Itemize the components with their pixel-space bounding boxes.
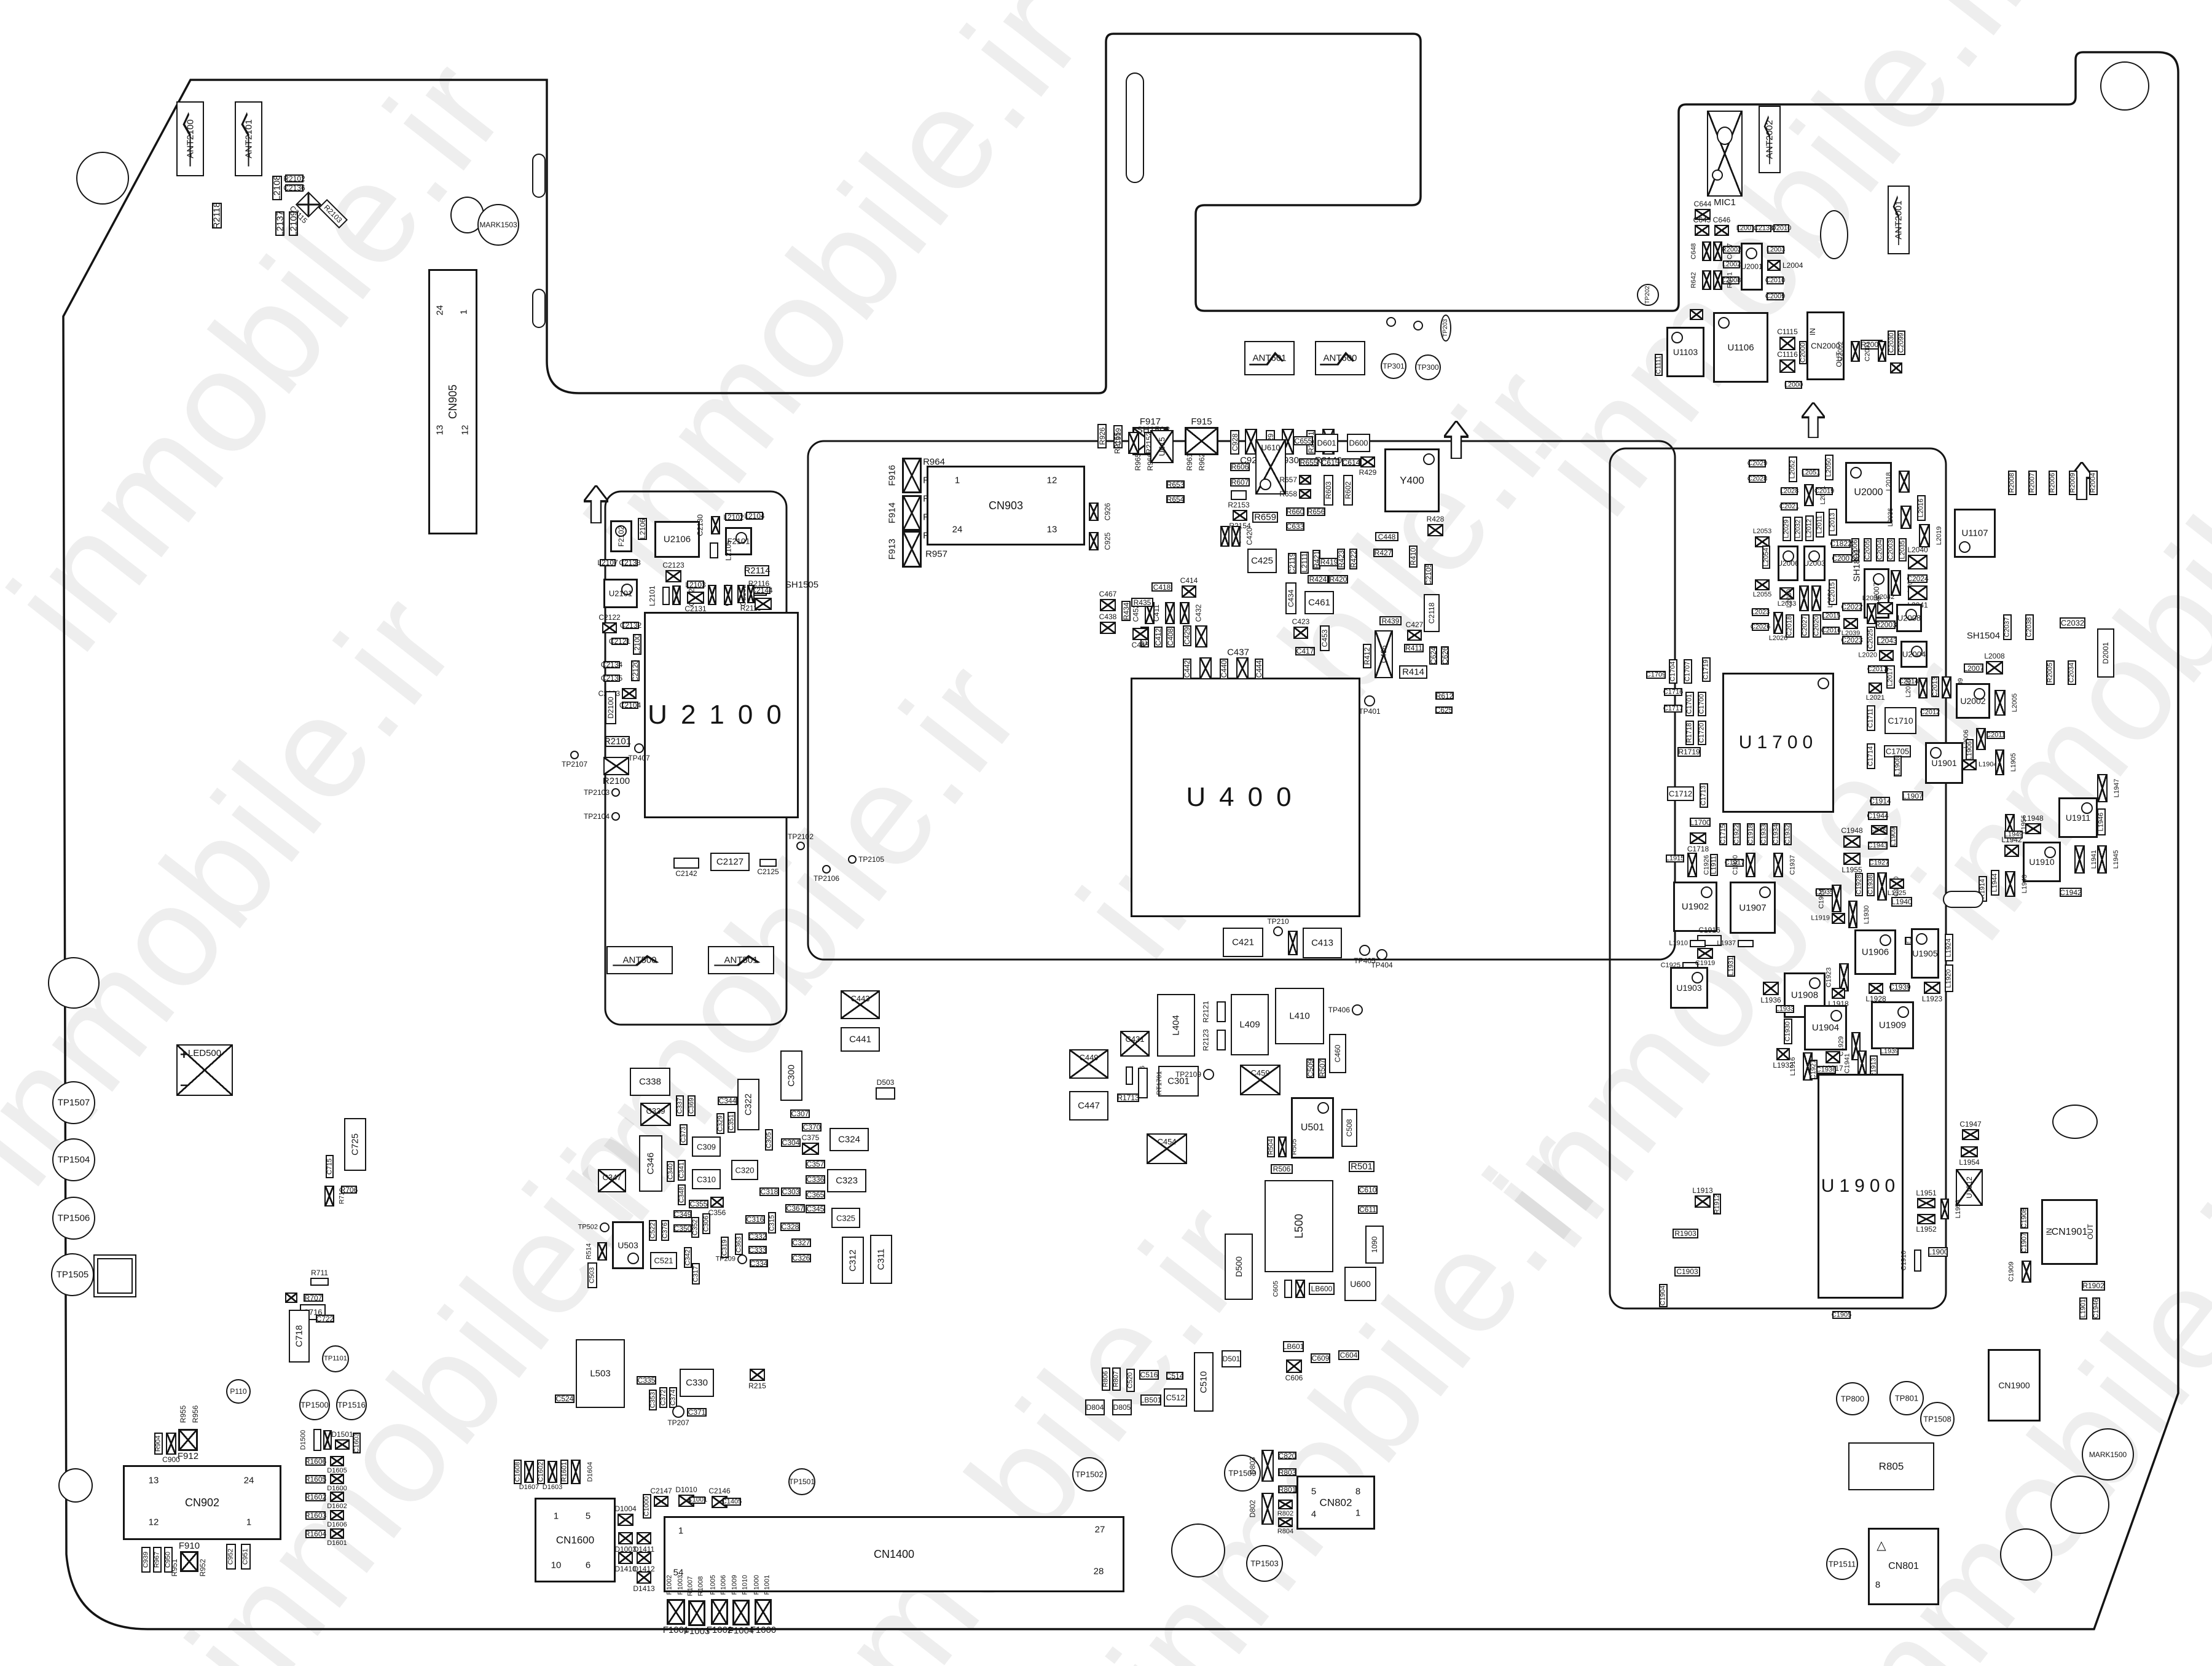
component-label: C309 bbox=[697, 1143, 716, 1151]
component-label: C1707 bbox=[1685, 662, 1692, 681]
capacitor-crossed-L2038: L2038 bbox=[1867, 603, 1877, 624]
part-R2008: R2008 bbox=[2008, 471, 2017, 495]
text-R1003: R1003 bbox=[678, 1575, 684, 1595]
part-C2024: C2024 bbox=[1908, 574, 1928, 583]
part-C344: C344 bbox=[718, 1097, 737, 1105]
pin1-dot bbox=[1959, 541, 1971, 553]
part-R2114: R2114 bbox=[745, 565, 769, 576]
part-R653: R653 bbox=[1166, 480, 1185, 488]
capacitor-crossed-C445: C445 bbox=[1132, 628, 1148, 640]
text-12: 12 bbox=[461, 425, 470, 436]
component-label: C1405 bbox=[722, 1498, 742, 1505]
board-hole-unlabeled bbox=[1820, 210, 1848, 259]
part-C328: C328 bbox=[780, 1222, 800, 1231]
component-label: C2004 bbox=[1877, 540, 1883, 560]
capacitor-crossed-R429: R429 bbox=[1360, 456, 1375, 467]
pin1-dot bbox=[1718, 317, 1730, 329]
capacitor-crossed-C2001: C2001 bbox=[1878, 341, 1886, 362]
part-L1937: L1937 bbox=[1738, 940, 1754, 947]
part-C1927: C1927 bbox=[1869, 859, 1889, 867]
part-C365: C365 bbox=[806, 1191, 825, 1199]
testpoint-TP1509: TP1509 bbox=[1224, 1455, 1261, 1492]
component-label: C1603 bbox=[353, 1433, 360, 1453]
testpoint-TP1507: TP1507 bbox=[52, 1081, 95, 1124]
part-C625: C625 bbox=[1435, 706, 1453, 714]
component-label: C2022 bbox=[1841, 603, 1862, 611]
part-C2009: C2009 bbox=[1767, 292, 1784, 300]
part-C1707: C1707 bbox=[1684, 659, 1692, 684]
component-label: L1901 bbox=[2080, 1299, 2087, 1318]
part-R801: R801 bbox=[1278, 1485, 1296, 1493]
capacitor-crossed-R710: R710 bbox=[324, 1186, 334, 1206]
part-C371: C371 bbox=[687, 1408, 707, 1417]
part-C324: C324 bbox=[829, 1128, 869, 1151]
component-label: C2021 bbox=[1779, 503, 1799, 510]
component-label: C460 bbox=[1334, 1045, 1341, 1063]
component-label: L1915 bbox=[1666, 855, 1685, 862]
part-L2000: L2000 bbox=[1785, 381, 1802, 389]
part-L1944: L1944 bbox=[1991, 870, 1999, 896]
text-R1008: R1008 bbox=[698, 1576, 705, 1596]
component-label: TP1503 bbox=[1250, 1560, 1279, 1568]
component-label: C326 bbox=[793, 1254, 810, 1262]
part-C442: C442 bbox=[1183, 659, 1191, 679]
layer-arrow-icon-unlabeled bbox=[584, 485, 608, 523]
component-label: C336 bbox=[807, 1176, 825, 1183]
component-label: R420 bbox=[1330, 576, 1347, 583]
testpoint-TP1501: TP1501 bbox=[788, 1468, 815, 1495]
part-C1905: C1905 bbox=[1832, 1311, 1851, 1319]
part-L2050: L2050 bbox=[1825, 455, 1834, 480]
part-C2005: C2005 bbox=[1864, 538, 1872, 561]
chip-U2002: U2002 bbox=[1956, 683, 1990, 719]
pin1-dot bbox=[2081, 802, 2093, 814]
part-LB600: LB600 bbox=[1309, 1283, 1335, 1295]
component-label: R612 bbox=[1436, 692, 1454, 700]
part-L2052: L2052 bbox=[1789, 456, 1797, 482]
microphone-MIC1: MIC1 bbox=[1707, 111, 1743, 197]
part-C319: C319 bbox=[721, 1237, 729, 1258]
part-R2121: R2121 bbox=[1217, 1001, 1226, 1022]
component-label: C348 bbox=[678, 1187, 685, 1203]
chip-U2000: U2000 bbox=[1845, 462, 1892, 523]
capacitor-crossed-C1948: C1948 bbox=[1843, 835, 1861, 848]
text-R1002: R1002 bbox=[667, 1575, 673, 1595]
part-C1000: C1000 bbox=[643, 1494, 651, 1519]
capacitor-crossed-R2122: R2122 bbox=[1288, 931, 1298, 955]
component-label: U600 bbox=[1350, 1280, 1370, 1288]
part-L2051: L2051 bbox=[1802, 469, 1819, 477]
component-label: TP800 bbox=[1841, 1395, 1864, 1403]
text-R965: R965 bbox=[1134, 453, 1142, 471]
part-C447: C447 bbox=[1069, 1091, 1108, 1120]
part-C1716: C1716 bbox=[1664, 688, 1682, 696]
component-label: C355 bbox=[690, 1200, 708, 1208]
component-label: L1920 bbox=[1946, 969, 1953, 988]
part-R612: R612 bbox=[1435, 692, 1454, 700]
component-label: C1946 bbox=[2093, 1299, 2100, 1318]
testpoint-TP405: TP405 bbox=[1359, 945, 1370, 956]
part-L1920: L1920 bbox=[1945, 964, 1953, 992]
component-label: R1601 bbox=[561, 1462, 568, 1482]
component-label: L1950 bbox=[1871, 827, 1888, 833]
board-slot-unlabeled bbox=[532, 154, 546, 198]
part-C2011: C2011 bbox=[1986, 731, 2005, 739]
part-C312: C312 bbox=[842, 1237, 864, 1284]
component-label: C1602 bbox=[538, 1462, 544, 1482]
capacitor-crossed-L1942: L1942 bbox=[2004, 845, 2019, 857]
capacitor-crossed-L1945: L1945 bbox=[2097, 845, 2107, 874]
part-C1943: C1943 bbox=[1868, 842, 1888, 850]
part-C373: C373 bbox=[680, 1124, 688, 1145]
component-label: C610 bbox=[1359, 1186, 1377, 1194]
text-5: 5 bbox=[586, 1512, 590, 1521]
part-C820: C820 bbox=[1278, 1452, 1296, 1460]
component-label: C1705 bbox=[1886, 748, 1909, 756]
component-label: C2038 bbox=[2026, 617, 2033, 637]
part-C524: C524 bbox=[555, 1394, 575, 1403]
text-27: 27 bbox=[1095, 1525, 1105, 1535]
component-label: L1933 bbox=[1776, 1006, 1795, 1012]
component-label: C353 bbox=[649, 1392, 656, 1408]
capacitor-crossed-R2154: R2154 bbox=[1233, 510, 1247, 521]
part-C444: C444 bbox=[1255, 659, 1263, 679]
capacitor-crossed-L1923: L1923 bbox=[1924, 982, 1940, 994]
pin1-dot bbox=[1930, 747, 1942, 759]
part-C919: C919 bbox=[1113, 425, 1123, 448]
part-D2001: D2001 bbox=[2097, 628, 2114, 678]
component-label: L2100 bbox=[633, 634, 641, 654]
part-C2025: C2025 bbox=[1867, 627, 1875, 651]
part-C333: C333 bbox=[748, 1246, 767, 1254]
component-label: L410 bbox=[1289, 1012, 1309, 1021]
capacitor-crossed-L2009: L2009 bbox=[1942, 676, 1951, 698]
component-label: U1900 bbox=[1821, 1177, 1900, 1195]
component-label: TP1502 bbox=[1075, 1471, 1104, 1479]
component-label: R806 bbox=[1103, 1371, 1110, 1387]
board-hole-unlabeled bbox=[2000, 1528, 2052, 1581]
component-label: C372 bbox=[660, 1390, 667, 1406]
capacitor-crossed-L2018: L2018 bbox=[1899, 471, 1910, 493]
part-C2142: C2142 bbox=[673, 858, 699, 869]
part-C725: C725 bbox=[344, 1118, 366, 1171]
component-label: C2011 bbox=[1986, 732, 2006, 738]
part-R2123: R2123 bbox=[1217, 1030, 1226, 1050]
component-label: C417 bbox=[1296, 647, 1314, 655]
led-LED500: +−LED500 bbox=[176, 1044, 233, 1096]
component-label: L409 bbox=[1239, 1020, 1260, 1030]
part-C367: C367 bbox=[785, 1204, 805, 1213]
part-C429: C429 bbox=[1183, 625, 1191, 646]
part-C355: C355 bbox=[689, 1200, 708, 1208]
text-13: 13 bbox=[149, 1476, 159, 1485]
component-label: L1907 bbox=[1902, 792, 1923, 800]
capacitor-crossed-D1501: D1501 bbox=[335, 1439, 350, 1450]
component-label: L1906 bbox=[1966, 741, 1973, 761]
capacitor-crossed-C1924: C1924 bbox=[1832, 885, 1841, 912]
capacitor-crossed-unlabeled bbox=[1199, 657, 1212, 679]
part-L2029: L2029 bbox=[1783, 517, 1791, 541]
component-label: C1917 bbox=[1725, 859, 1744, 866]
part-R414: R414 bbox=[1399, 665, 1427, 679]
component-label: L1946 bbox=[2098, 813, 2105, 832]
part-C2015: C2015 bbox=[1829, 579, 1837, 605]
component-label: C2007 bbox=[1832, 555, 1853, 562]
component-label: C1719 bbox=[1703, 660, 1710, 679]
component-label: U503 bbox=[618, 1241, 638, 1249]
part-C2099: C2099 bbox=[1897, 330, 1905, 355]
board-hole-unlabeled bbox=[76, 152, 129, 205]
part-R2102: R2102 bbox=[285, 174, 304, 182]
component-label: U1912 bbox=[1966, 1176, 1973, 1198]
part-R2006: R2006 bbox=[2049, 471, 2057, 495]
testpoint-TP1502: TP1502 bbox=[1072, 1457, 1107, 1492]
part-C418: C418 bbox=[1151, 582, 1172, 592]
part-R427: R427 bbox=[1373, 549, 1393, 557]
component-label: D600 bbox=[1349, 439, 1368, 447]
component-label: C1111 bbox=[1655, 356, 1662, 374]
part-C2138: C2138 bbox=[1755, 225, 1771, 232]
connector-CN1600: CN1600 bbox=[535, 1498, 616, 1582]
component-label: C1927 bbox=[1869, 859, 1889, 866]
component-label: C322 bbox=[744, 1093, 753, 1116]
part-C2003: C2003 bbox=[1887, 538, 1895, 561]
capacitor-crossed-R215: R215 bbox=[750, 1369, 765, 1381]
component-label: C2017 bbox=[1867, 666, 1887, 673]
pin1-dot bbox=[1911, 646, 1923, 657]
component-label: U615 bbox=[1158, 437, 1166, 456]
part-C453: C453 bbox=[1320, 625, 1330, 651]
part-L2032: L2032 bbox=[1794, 517, 1803, 541]
text-12: 12 bbox=[149, 1518, 159, 1527]
component-label: C418 bbox=[1153, 584, 1171, 591]
testpoint-TP1506: TP1506 bbox=[52, 1197, 95, 1240]
part-L1910: L1910 bbox=[1690, 940, 1706, 947]
component-label: C334 bbox=[750, 1260, 768, 1267]
component-label: C365 bbox=[807, 1191, 825, 1199]
capacitor-crossed-D1603: D1603 bbox=[547, 1461, 557, 1483]
board-hole-unlabeled bbox=[48, 957, 100, 1009]
capacitor-crossed-C644: C644 bbox=[1695, 209, 1711, 220]
part-C2032: C2032 bbox=[2060, 617, 2085, 628]
text-SH1505: SH1505 bbox=[785, 581, 818, 590]
component-label: L1909 bbox=[1891, 827, 1897, 847]
capacitor-crossed-L1954: L1954 bbox=[1961, 1146, 1978, 1157]
part-C514: C514 bbox=[1166, 1372, 1183, 1380]
part-C461: C461 bbox=[1304, 591, 1334, 614]
component-label: C1904 bbox=[1660, 1286, 1667, 1305]
capacitor-crossed-C436: C436 bbox=[1375, 630, 1393, 678]
capacitor-crossed-C2126: C2126 bbox=[672, 585, 681, 605]
part-D503: D503 bbox=[876, 1087, 895, 1100]
part-R2101: R2101 bbox=[605, 736, 630, 747]
part-C1903: C1903 bbox=[1674, 1267, 1700, 1277]
component-label: L1935 bbox=[1815, 889, 1834, 896]
part-C316: C316 bbox=[745, 1215, 765, 1224]
component-label: C2028 bbox=[1747, 475, 1767, 482]
capacitor-crossed-L1928: L1928 bbox=[1869, 983, 1883, 994]
component-label: C332 bbox=[749, 1233, 767, 1240]
capacitor-crossed-unlabeled bbox=[1195, 625, 1207, 647]
text-R955: R955 bbox=[179, 1406, 187, 1423]
part-C2013: C2013 bbox=[1931, 676, 1939, 697]
component-label: C357 bbox=[807, 1160, 825, 1168]
text-SH1504: SH1504 bbox=[1967, 632, 2000, 641]
component-label: R504 bbox=[1268, 1139, 1274, 1155]
component-label: L2023 bbox=[1751, 609, 1770, 616]
component-label: C2118 bbox=[1428, 603, 1435, 624]
antenna-ANT500: ANT500 bbox=[606, 946, 673, 974]
part-R1605: R1605 bbox=[305, 1475, 326, 1484]
component-label: R1902 bbox=[2082, 1282, 2104, 1289]
text-R962: R962 bbox=[1198, 453, 1206, 471]
component-label: C350 bbox=[674, 1225, 692, 1232]
component-label: C425 bbox=[1251, 557, 1273, 566]
part-C363: C363 bbox=[735, 1234, 743, 1255]
capacitor-crossed-C1937: C1937 bbox=[1773, 853, 1783, 877]
part-1090: 1090 bbox=[1365, 1226, 1384, 1264]
part-C1938: C1938 bbox=[1867, 873, 1875, 896]
board-hole-unlabeled bbox=[1171, 1523, 1225, 1578]
part-R805: R805 bbox=[1848, 1442, 1934, 1490]
part-C2121: C2121 bbox=[611, 638, 628, 645]
board-hole-unlabeled bbox=[2100, 61, 2149, 111]
capacitor-crossed-C1941: C1941 bbox=[1857, 1050, 1867, 1076]
part-R711: R711 bbox=[310, 1278, 329, 1286]
capacitor-crossed-L2008: L2008 bbox=[1986, 661, 2003, 675]
part-C2023: C2023 bbox=[1842, 636, 1862, 644]
component-label: D2001 bbox=[2102, 642, 2109, 663]
pin1-dot bbox=[1746, 248, 1757, 259]
capacitor-crossed-L2004: L2004 bbox=[1767, 260, 1781, 271]
text-1: 1 bbox=[460, 310, 469, 315]
part-C1930: C1930 bbox=[1784, 1019, 1792, 1044]
part-C1713: C1713 bbox=[1700, 783, 1708, 808]
fuse-F916: F916 bbox=[902, 458, 922, 493]
part-C307: C307 bbox=[790, 1109, 810, 1118]
part-C326: C326 bbox=[791, 1254, 811, 1262]
part-R654: R654 bbox=[1166, 495, 1185, 503]
part-L2104: L2104 bbox=[746, 512, 763, 520]
capacitor-crossed-C1909: C1909 bbox=[2022, 1261, 2031, 1283]
part-C315: C315 bbox=[768, 1212, 776, 1234]
fuse-F1000: F1000 bbox=[755, 1599, 772, 1625]
polarity-mark: − bbox=[180, 1077, 188, 1093]
component-label: L1944 bbox=[1992, 874, 1999, 893]
component-label: C919 bbox=[1115, 428, 1122, 446]
component-label: C448 bbox=[1378, 533, 1396, 541]
part-C1914: C1914 bbox=[1870, 797, 1890, 805]
part-R1716: R1716 bbox=[1126, 1066, 1133, 1085]
chip-U1903: U1903 bbox=[1670, 967, 1708, 1009]
testpoint-TP1500: TP1500 bbox=[299, 1390, 330, 1420]
part-R806: R806 bbox=[1102, 1367, 1110, 1391]
component-label: C2019 bbox=[1814, 488, 1834, 495]
component-label: C352 bbox=[692, 1219, 699, 1235]
part-C2105: C2105 bbox=[1424, 564, 1433, 585]
component-label: C459 bbox=[1250, 1069, 1269, 1077]
component-label: C2030 bbox=[1888, 333, 1895, 353]
component-label: C2121 bbox=[609, 638, 630, 645]
pin1-dot bbox=[1783, 550, 1794, 562]
part-C605: C605 bbox=[1284, 1280, 1292, 1298]
mic-port-circle bbox=[1717, 127, 1733, 145]
component-label: C1944 bbox=[1867, 812, 1888, 819]
part-C448: C448 bbox=[1375, 532, 1398, 541]
component-label: C330 bbox=[686, 1379, 708, 1388]
capacitor-crossed-D1604: D1604 bbox=[571, 1460, 581, 1484]
part-C1701: C1701 bbox=[1685, 692, 1694, 716]
capacitor-crossed-C2100: C2100 bbox=[708, 585, 716, 605]
part-C503: C503 bbox=[587, 1262, 597, 1288]
part-L404: L404 bbox=[1157, 994, 1195, 1057]
component-label: L2029 bbox=[1784, 520, 1790, 539]
component-label: L2028 bbox=[1780, 488, 1799, 495]
part-C1714: C1714 bbox=[1867, 743, 1875, 769]
component-label: C503 bbox=[589, 1267, 596, 1283]
testpoint-TP2103: TP2103 bbox=[611, 788, 620, 797]
component-label: L2017 bbox=[1888, 668, 1894, 687]
component-label: C1939 bbox=[1889, 984, 1910, 991]
component-label: L1931 bbox=[1728, 957, 1735, 976]
chip-U2100: U2100 bbox=[644, 612, 799, 818]
component-label: L1939 bbox=[1880, 1048, 1899, 1055]
component-label: C363 bbox=[735, 1236, 742, 1252]
component-label: L2051 bbox=[1802, 469, 1821, 476]
fuse-F912: F912 bbox=[178, 1429, 198, 1451]
chip-U1700: U1700 bbox=[1722, 673, 1834, 813]
component-label: L404 bbox=[1172, 1015, 1181, 1035]
component-label: C1905 bbox=[1832, 1312, 1851, 1318]
part-C2037: C2037 bbox=[2003, 614, 2012, 640]
part-C357: C357 bbox=[806, 1160, 825, 1168]
component-label: L2002 bbox=[1722, 261, 1741, 268]
component-label: R414 bbox=[1402, 668, 1424, 677]
part-C2127: C2127 bbox=[710, 853, 750, 871]
component-label: Y400 bbox=[1400, 475, 1424, 486]
part-C2027: C2027 bbox=[1801, 614, 1810, 638]
component-label: C447 bbox=[1078, 1101, 1100, 1111]
capacitor-crossed-R657: R657 bbox=[1299, 475, 1311, 485]
capacitor-crossed-C2147: C2147 bbox=[654, 1496, 669, 1507]
part-C1936: C1936 bbox=[1816, 1066, 1836, 1074]
part-R904: R904 bbox=[154, 1433, 163, 1455]
component-label: C421 bbox=[1232, 938, 1254, 947]
part-L2109: L2109 bbox=[289, 211, 298, 236]
component-label: C2012 bbox=[1920, 709, 1940, 716]
part-R602: R602 bbox=[1343, 475, 1353, 506]
component-label: C304 bbox=[782, 1139, 800, 1146]
chip-F2101: F2101 bbox=[725, 527, 752, 555]
part-C1111: C1111 bbox=[1655, 354, 1663, 376]
component-label: R2002 bbox=[1722, 246, 1741, 253]
component-label: C2014 bbox=[1899, 678, 1918, 685]
part-C376: C376 bbox=[661, 1220, 669, 1241]
part-C510: C510 bbox=[1194, 1352, 1214, 1412]
component-label: C1713 bbox=[1701, 786, 1708, 805]
part-L2011: L2011 bbox=[1816, 512, 1824, 538]
component-label: R656 bbox=[1308, 508, 1325, 515]
text-8: 8 bbox=[1355, 1487, 1360, 1496]
part-C2019: C2019 bbox=[1816, 487, 1833, 495]
component-label: C624 bbox=[1430, 647, 1437, 665]
testpoint-TP407: TP407 bbox=[634, 743, 644, 753]
component-label: R2004 bbox=[2090, 473, 2097, 493]
component-label: C2037 bbox=[2004, 617, 2011, 637]
capacitor-crossed-L2006: L2006 bbox=[1976, 728, 1986, 750]
component-label: R606 bbox=[1231, 463, 1249, 471]
component-label: C315 bbox=[769, 1214, 775, 1230]
